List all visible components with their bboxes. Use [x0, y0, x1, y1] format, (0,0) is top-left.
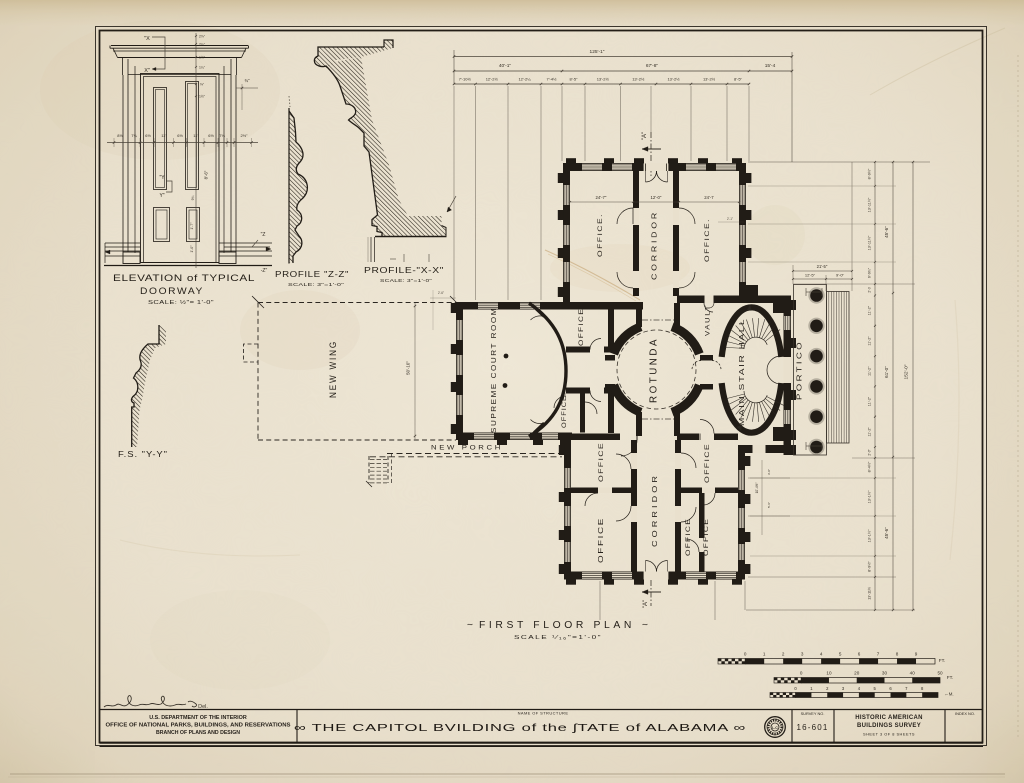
svg-text:125'-1": 125'-1" — [590, 49, 605, 55]
svg-text:40'-1": 40'-1" — [499, 63, 512, 69]
svg-text:45'-6": 45'-6" — [884, 527, 889, 539]
svg-text:INDEX NO.: INDEX NO. — [955, 711, 975, 716]
svg-text:SCALE: ½"= 1'-0": SCALE: ½"= 1'-0" — [148, 299, 214, 306]
svg-text:13'-1½": 13'-1½" — [868, 529, 872, 542]
svg-text:0: 0 — [800, 671, 803, 676]
svg-text:13'-2½: 13'-2½ — [667, 77, 680, 82]
svg-text:OFFICE: OFFICE — [685, 518, 692, 556]
svg-text:50'-10": 50'-10" — [406, 361, 411, 375]
svg-text:F.S. "Y-Y": F.S. "Y-Y" — [118, 450, 168, 459]
svg-text:8'-5": 8'-5" — [734, 77, 743, 82]
svg-text:∼: ∼ — [467, 620, 474, 629]
svg-text:CORRIDOR: CORRIDOR — [650, 473, 659, 547]
svg-text:1½": 1½" — [199, 56, 206, 60]
svg-text:BRANCH OF PLANS AND DESIGN: BRANCH OF PLANS AND DESIGN — [156, 730, 240, 736]
svg-text:OFFICE.: OFFICE. — [597, 213, 604, 257]
svg-text:3: 3 — [801, 652, 804, 657]
svg-text:4: 4 — [820, 652, 823, 657]
svg-text:3'-0": 3'-0" — [767, 469, 771, 475]
svg-text:FIRST FLOOR PLAN: FIRST FLOOR PLAN — [479, 620, 635, 631]
svg-text:SCALE: 3"=1'-0": SCALE: 3"=1'-0" — [380, 278, 432, 283]
svg-text:12'-2½: 12'-2½ — [486, 77, 499, 82]
svg-text:1'-7": 1'-7" — [190, 222, 194, 230]
svg-text:8'-4½": 8'-4½" — [868, 461, 872, 472]
svg-text:30: 30 — [882, 671, 888, 676]
svg-text:NEW WING: NEW WING — [328, 340, 338, 398]
svg-text:13'-11½": 13'-11½" — [868, 197, 872, 212]
svg-text:12'-2¼: 12'-2¼ — [518, 77, 531, 82]
svg-text:-Z": -Z" — [261, 268, 268, 274]
svg-text:2½": 2½" — [241, 133, 249, 138]
svg-text:1'-0": 1'-0" — [190, 245, 194, 253]
svg-text:12'-5": 12'-5" — [805, 273, 816, 278]
svg-text:∼: ∼ — [642, 620, 649, 629]
svg-text:9'-0": 9'-0" — [836, 273, 845, 278]
svg-text:PORTICO: PORTICO — [795, 340, 804, 400]
svg-text:SURVEY NO.: SURVEY NO. — [801, 711, 825, 716]
svg-text:21'-5": 21'-5" — [817, 264, 828, 269]
svg-text:"A": "A" — [642, 132, 648, 140]
svg-text:←M.: ←M. — [944, 692, 953, 697]
svg-text:24'-7": 24'-7" — [596, 195, 607, 200]
svg-text:2'-3": 2'-3" — [868, 449, 872, 455]
svg-text:"A": "A" — [643, 600, 649, 608]
svg-text:"Y: "Y — [159, 175, 165, 181]
svg-text:"Z: "Z — [261, 232, 266, 238]
svg-text:NEW PORCH: NEW PORCH — [431, 445, 503, 452]
svg-text:ROTUNDA: ROTUNDA — [649, 337, 660, 403]
svg-text:13'-2½: 13'-2½ — [597, 77, 610, 82]
svg-text:12'-0": 12'-0" — [651, 195, 662, 200]
svg-text:20: 20 — [854, 671, 860, 676]
svg-text:6½: 6½ — [145, 133, 151, 138]
svg-text:6½: 6½ — [208, 133, 214, 138]
svg-text:9: 9 — [915, 652, 918, 657]
svg-text:13'-1½": 13'-1½" — [868, 490, 872, 503]
svg-text:8'-6": 8'-6" — [204, 170, 209, 179]
svg-text:CORRIDOR: CORRIDOR — [652, 210, 659, 280]
svg-text:¾": ¾" — [245, 78, 250, 83]
svg-text:SCALE: 3"=1'-0": SCALE: 3"=1'-0" — [288, 282, 344, 287]
svg-text:15'-4: 15'-4 — [765, 63, 776, 69]
svg-text:8'-9½": 8'-9½" — [868, 560, 872, 571]
svg-text:16-601: 16-601 — [796, 723, 828, 732]
svg-text:OFFICE: OFFICE — [704, 443, 711, 483]
svg-text:67'-8": 67'-8" — [646, 63, 659, 69]
svg-text:MAIN STAIR HALL: MAIN STAIR HALL — [737, 318, 746, 426]
svg-text:PROFILE-"X-X": PROFILE-"X-X" — [364, 266, 444, 275]
svg-text:VAULT: VAULT — [705, 304, 712, 336]
svg-text:1: 1 — [763, 652, 766, 657]
svg-text:1¼": 1¼" — [199, 66, 206, 70]
svg-text:SHEET 3 OF 8 SHEETS: SHEET 3 OF 8 SHEETS — [863, 732, 915, 737]
svg-text:OFFICE OF NATIONAL PARKS, BUIL: OFFICE OF NATIONAL PARKS, BUILDINGS, AND… — [106, 723, 292, 729]
svg-text:11'-2": 11'-2" — [868, 305, 872, 315]
svg-text:HISTORIC AMERICAN: HISTORIC AMERICAN — [855, 715, 922, 721]
svg-text:7: 7 — [877, 652, 880, 657]
svg-text:61'-0": 61'-0" — [884, 366, 889, 378]
svg-text:1½": 1½" — [199, 95, 206, 99]
svg-text:2'-6": 2'-6" — [438, 291, 444, 295]
svg-text:BUILDINGS SURVEY: BUILDINGS SURVEY — [857, 723, 921, 729]
svg-text:7'-4½: 7'-4½ — [547, 77, 558, 82]
svg-text:24'-7: 24'-7 — [704, 195, 714, 200]
svg-text:11": 11" — [161, 133, 167, 138]
svg-text:FT.: FT. — [947, 675, 953, 680]
svg-text:11'-2": 11'-2" — [868, 336, 872, 346]
svg-text:OFFICE.: OFFICE. — [704, 218, 711, 262]
svg-text:45'-6": 45'-6" — [884, 226, 889, 238]
svg-text:11'-2": 11'-2" — [868, 366, 872, 376]
svg-text:PROFILE "Z-Z": PROFILE "Z-Z" — [275, 270, 349, 279]
svg-text:DOORWAY: DOORWAY — [140, 286, 204, 297]
svg-text:SCALE ¹⁄₁₆"=1'-0": SCALE ¹⁄₁₆"=1'-0" — [514, 635, 602, 641]
svg-text:13'-2½: 13'-2½ — [703, 77, 716, 82]
svg-text:10: 10 — [826, 671, 832, 676]
svg-text:13'-11½": 13'-11½" — [868, 235, 872, 250]
svg-text:50: 50 — [937, 671, 943, 676]
svg-text:2'-3: 2'-3 — [868, 287, 872, 292]
svg-text:13'-2½: 13'-2½ — [632, 77, 645, 82]
svg-text:OFFICE: OFFICE — [578, 308, 585, 346]
svg-text:OFFICE: OFFICE — [598, 517, 605, 563]
svg-text:∞ THE CAPITOL BVILDING of: ∞ THE CAPITOL BVILDING of the ʃTATE of A… — [294, 722, 746, 734]
svg-text:6: 6 — [858, 652, 861, 657]
svg-text:11'-2": 11'-2" — [868, 427, 872, 437]
svg-text:"X: "X — [144, 36, 150, 42]
svg-text:2¼": 2¼" — [199, 43, 206, 47]
svg-text:11'-2": 11'-2" — [868, 396, 872, 406]
svg-text:152'-0": 152'-0" — [904, 364, 910, 379]
svg-text:SUPREME COURT ROOM: SUPREME COURT ROOM — [489, 307, 498, 433]
svg-text:0: 0 — [744, 652, 747, 657]
svg-text:8'-9½": 8'-9½" — [868, 168, 872, 179]
svg-text:OFFICE: OFFICE — [598, 442, 605, 482]
svg-text:8: 8 — [896, 652, 899, 657]
svg-text:OFFICE: OFFICE — [703, 518, 710, 556]
svg-text:13'-11½: 13'-11½ — [868, 587, 872, 600]
svg-text:40: 40 — [910, 671, 916, 676]
svg-text:6½: 6½ — [177, 133, 183, 138]
svg-text:8½: 8½ — [117, 133, 123, 138]
svg-text:ELEVATION of TYPICAL: ELEVATION of TYPICAL — [113, 273, 255, 284]
svg-text:2'-1": 2'-1" — [727, 217, 733, 221]
svg-text:FT.: FT. — [939, 658, 945, 663]
svg-text:9¾: 9¾ — [191, 195, 195, 200]
svg-text:11": 11" — [193, 133, 199, 138]
svg-text:8'-5": 8'-5" — [570, 77, 579, 82]
svg-text:7'-10½: 7'-10½ — [459, 77, 472, 82]
svg-text:OFFICE.: OFFICE. — [562, 392, 568, 428]
svg-text:7⅛: 7⅛ — [219, 133, 225, 138]
svg-text:Y": Y" — [159, 193, 164, 199]
svg-text:L.C: L.C — [772, 726, 778, 730]
svg-text:5'-6": 5'-6" — [767, 502, 771, 508]
svg-text:NAME OF STRUCTURE: NAME OF STRUCTURE — [518, 711, 569, 716]
svg-text:6'-9¾": 6'-9¾" — [868, 267, 872, 278]
svg-text:2⅞": 2⅞" — [199, 35, 206, 39]
svg-text:10'-4½": 10'-4½" — [755, 483, 759, 494]
svg-text:5: 5 — [839, 652, 842, 657]
svg-text:U.S. DEPARTMENT OF THE INTERIO: U.S. DEPARTMENT OF THE INTERIOR — [149, 715, 247, 721]
svg-text:X": X" — [144, 68, 150, 74]
svg-text:7¼: 7¼ — [131, 133, 137, 138]
svg-text:2: 2 — [782, 652, 785, 657]
